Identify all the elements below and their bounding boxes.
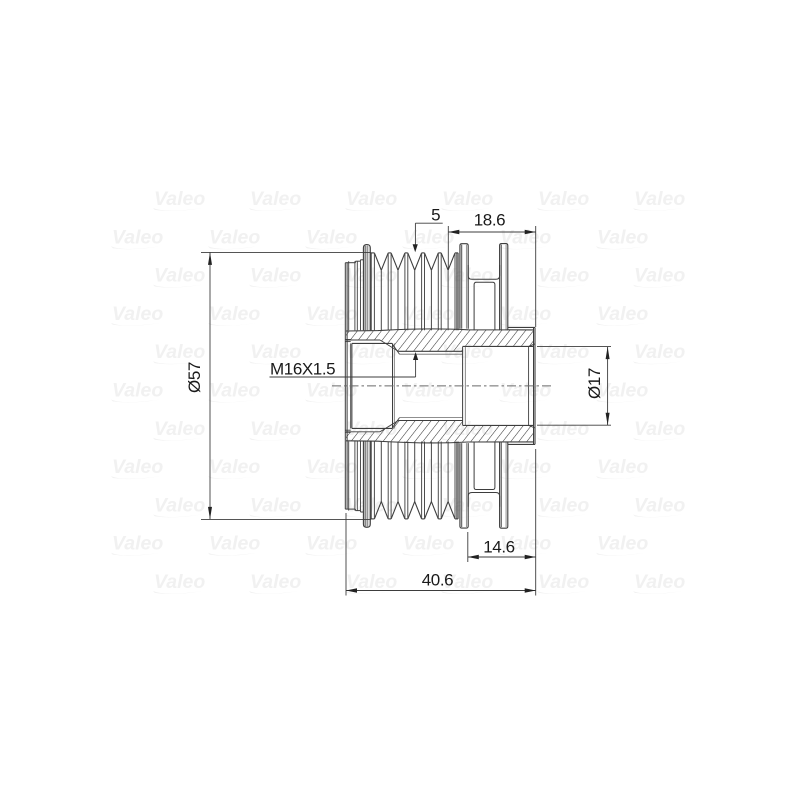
svg-text:40.6: 40.6 [422, 571, 454, 590]
svg-text:14.6: 14.6 [483, 538, 515, 557]
svg-text:18.6: 18.6 [474, 211, 506, 230]
svg-text:Ø57: Ø57 [185, 362, 204, 393]
svg-text:M16X1.5: M16X1.5 [270, 359, 335, 378]
svg-text:Ø17: Ø17 [585, 368, 604, 399]
svg-text:5: 5 [431, 206, 440, 225]
